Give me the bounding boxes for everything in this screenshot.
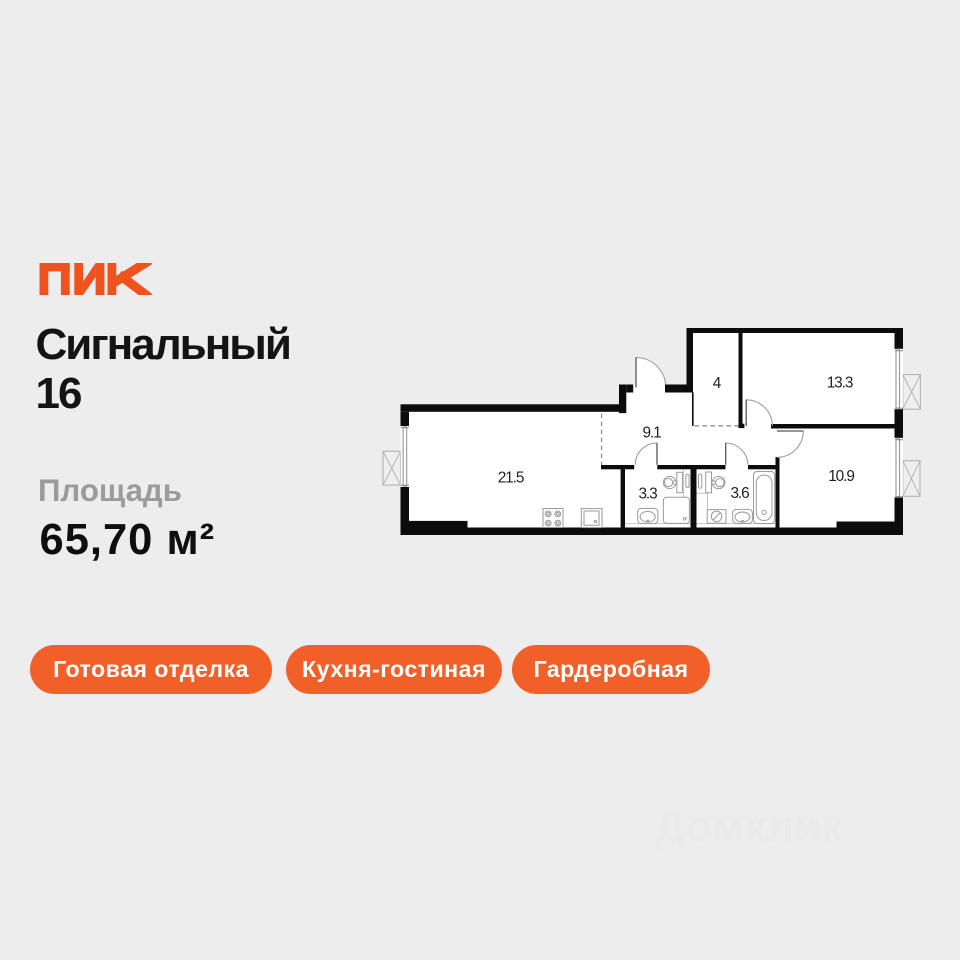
svg-text:13.3: 13.3 — [827, 375, 853, 392]
svg-text:3.3: 3.3 — [638, 486, 657, 503]
svg-text:21.5: 21.5 — [498, 470, 524, 487]
svg-text:9.1: 9.1 — [642, 425, 661, 442]
svg-text:10.9: 10.9 — [828, 468, 854, 485]
svg-text:3.6: 3.6 — [730, 485, 749, 502]
